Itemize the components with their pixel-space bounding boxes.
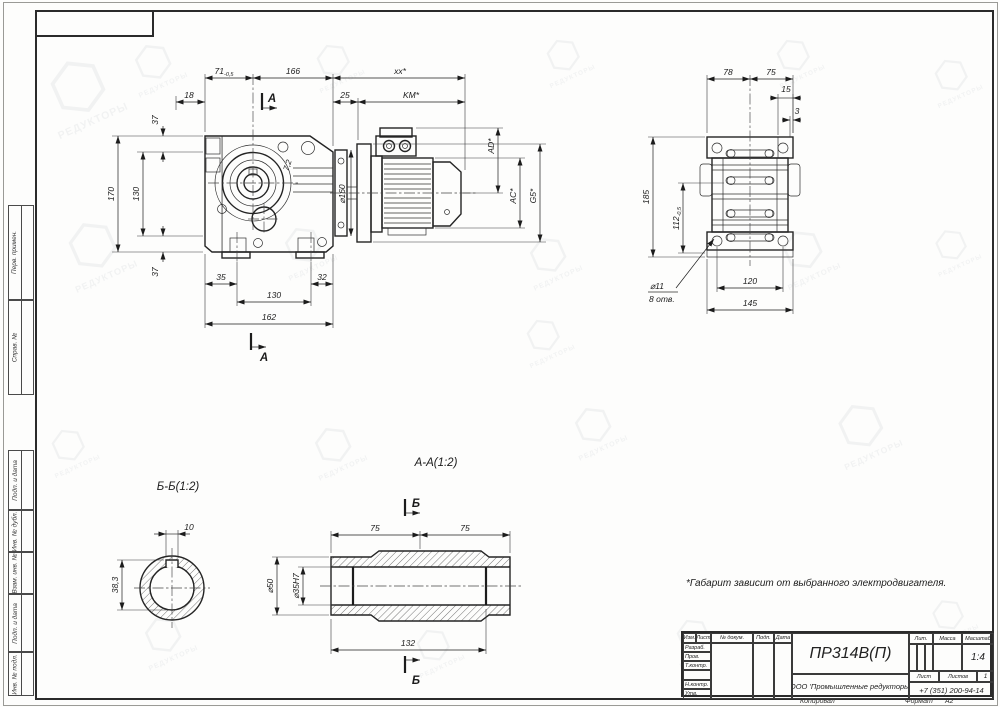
tb-scale-value: 1:4	[962, 644, 994, 671]
dim-hole-count: 8 отв.	[649, 294, 675, 304]
dim-ac: AC*	[508, 188, 518, 205]
section-bb-title: Б-Б(1:2)	[157, 481, 200, 493]
tb-scale-label: Масштаб	[962, 633, 994, 644]
dim-38-3: 38,3	[110, 576, 120, 593]
dim-35h7: ⌀35H7	[291, 573, 301, 599]
motor-fins	[384, 164, 431, 223]
dim-10: 10	[184, 522, 194, 532]
dim-185: 185	[641, 190, 651, 204]
dim-37-top: 37	[150, 115, 160, 125]
drawing-canvas: 71-0,5 166 xx* 18 25 KM* А А 170	[0, 0, 1000, 707]
tb-row-razrab: Разраб.	[683, 643, 711, 652]
dim-32: 32	[317, 272, 327, 282]
tb-row-empty	[683, 670, 711, 680]
dim-132: 132	[401, 638, 415, 648]
dim-112: 112-0,5	[671, 206, 683, 230]
main-view-gearmotor: 71-0,5 166 xx* 18 25 KM* А А 170	[106, 66, 546, 364]
tb-col-data: Дата	[774, 633, 792, 643]
format-label: Формат	[905, 698, 933, 705]
dim-130-left: 130	[131, 187, 141, 201]
tb-lit-cell-2	[917, 644, 925, 671]
tb-col-podp: Подп.	[753, 633, 774, 643]
dim-15: 15	[781, 84, 791, 94]
side-view-housing: 78 75 15 3 185 112-0,5 120	[641, 67, 801, 314]
section-aa-title: А-А(1:2)	[414, 457, 458, 469]
tb-phone: +7 (351) 200-94-14	[909, 682, 994, 699]
section-b-top-label: Б	[412, 498, 420, 510]
section-bb-view: Б-Б(1:2) 10 38,3	[110, 481, 210, 628]
tb-row-tkontr: Т.контр.	[683, 661, 711, 670]
dim-ad: AD*	[486, 138, 496, 155]
dim-18: 18	[184, 90, 194, 100]
dim-35: 35	[216, 272, 226, 282]
dim-78: 78	[723, 67, 733, 77]
tb-lit-cell-3	[925, 644, 933, 671]
dim-25: 25	[339, 90, 350, 100]
dim-50: ⌀50	[265, 578, 275, 593]
dim-160: ⌀160	[337, 184, 347, 204]
tb-row-prov: Пров.	[683, 652, 711, 661]
dim-g5: G5*	[528, 188, 538, 203]
tb-docnum-col	[711, 643, 753, 699]
section-a-top-label: А	[267, 93, 276, 105]
tb-lit-cell-1	[909, 644, 917, 671]
dim-145: 145	[743, 298, 757, 308]
tb-row-nkontr: Н.контр.	[683, 680, 711, 689]
dim-162: 162	[262, 312, 276, 322]
dim-120: 120	[743, 276, 757, 286]
dim-km: KM*	[403, 90, 420, 100]
dim-75-right: 75	[460, 523, 470, 533]
tb-col-doc: № докум.	[711, 633, 753, 643]
dim-71: 71-0,5	[215, 66, 235, 78]
dim-xx: xx*	[393, 66, 407, 76]
tb-company: ООО 'Промышленные редукторы'	[792, 674, 909, 699]
drawing-sheet: ⬡РЕДУКТОРЫ⬡РЕДУКТОРЫ⬡РЕДУКТОРЫ⬡РЕДУКТОРЫ…	[0, 0, 1000, 707]
dim-166: 166	[286, 66, 300, 76]
tb-col-list: Лист	[696, 633, 711, 643]
format-value: А2	[945, 698, 954, 705]
section-a-bottom-label: А	[259, 352, 268, 364]
dim-75: 75	[766, 67, 776, 77]
tb-data-col	[774, 643, 792, 699]
tb-sheet-label: Лист	[909, 671, 939, 682]
tb-col-izm: Изм.	[683, 633, 696, 643]
dim-hole-dia: ⌀11	[650, 281, 664, 291]
dim-37-bottom: 37	[150, 267, 160, 277]
tb-sheets-value: 1	[977, 671, 994, 682]
tb-doc-number: ПР314В(П)	[792, 633, 909, 674]
dim-130-bottom: 130	[267, 290, 281, 300]
dim-170: 170	[106, 187, 116, 201]
section-aa-view: А-А(1:2) Б Б 75 75	[265, 457, 522, 687]
copied-label: Копировал	[800, 698, 835, 705]
tb-row-utv: Утв.	[683, 689, 711, 699]
dim-3: 3	[795, 106, 800, 116]
tb-sheets-label: Листов	[939, 671, 977, 682]
tb-mass-value	[933, 644, 962, 671]
section-b-bottom-label: Б	[412, 675, 420, 687]
footnote-text: *Габарит зависит от выбранного электродв…	[686, 577, 946, 589]
tb-podp-col	[753, 643, 774, 699]
title-block: Изм. Лист № докум. Подп. Дата Разраб. Пр…	[681, 631, 992, 697]
tb-mass-label: Масса	[933, 633, 962, 644]
tb-lit-label: Лит.	[909, 633, 933, 644]
dim-75-left: 75	[370, 523, 380, 533]
